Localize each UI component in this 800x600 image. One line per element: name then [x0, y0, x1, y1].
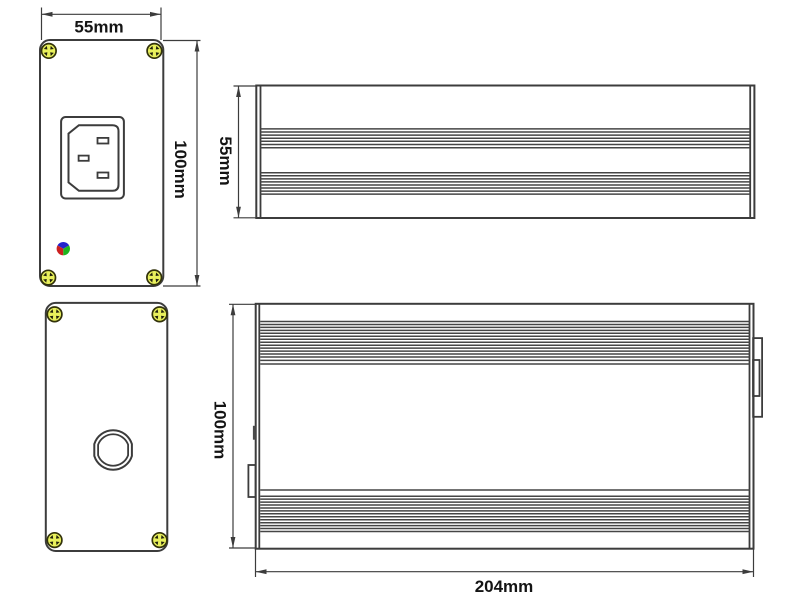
svg-text:100mm: 100mm — [211, 401, 230, 460]
svg-text:204mm: 204mm — [475, 577, 534, 596]
svg-text:55mm: 55mm — [216, 136, 235, 185]
svg-text:100mm: 100mm — [171, 140, 190, 199]
svg-text:55mm: 55mm — [74, 17, 123, 36]
